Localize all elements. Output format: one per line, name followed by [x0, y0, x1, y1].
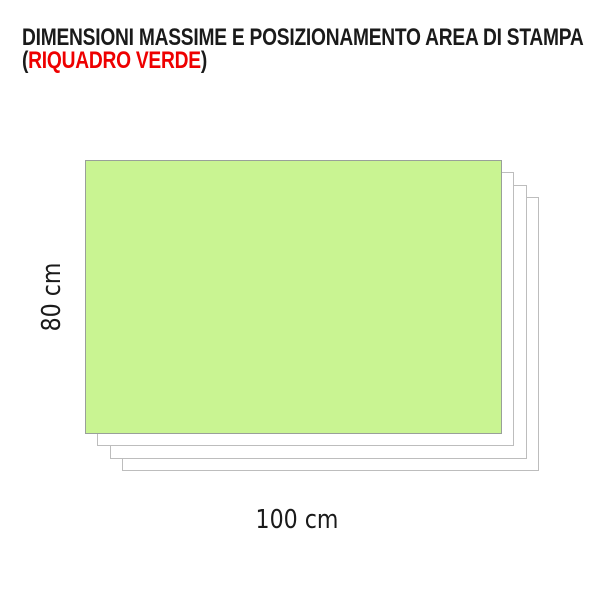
width-dimension-label: 100 cm: [256, 505, 339, 535]
page: DIMENSIONI MASSIME E POSIZIONAMENTO AREA…: [0, 0, 600, 600]
print-area-diagram: 80 cm 100 cm: [0, 0, 600, 600]
print-area-rect: [85, 160, 502, 434]
height-dimension-label: 80 cm: [37, 263, 67, 332]
